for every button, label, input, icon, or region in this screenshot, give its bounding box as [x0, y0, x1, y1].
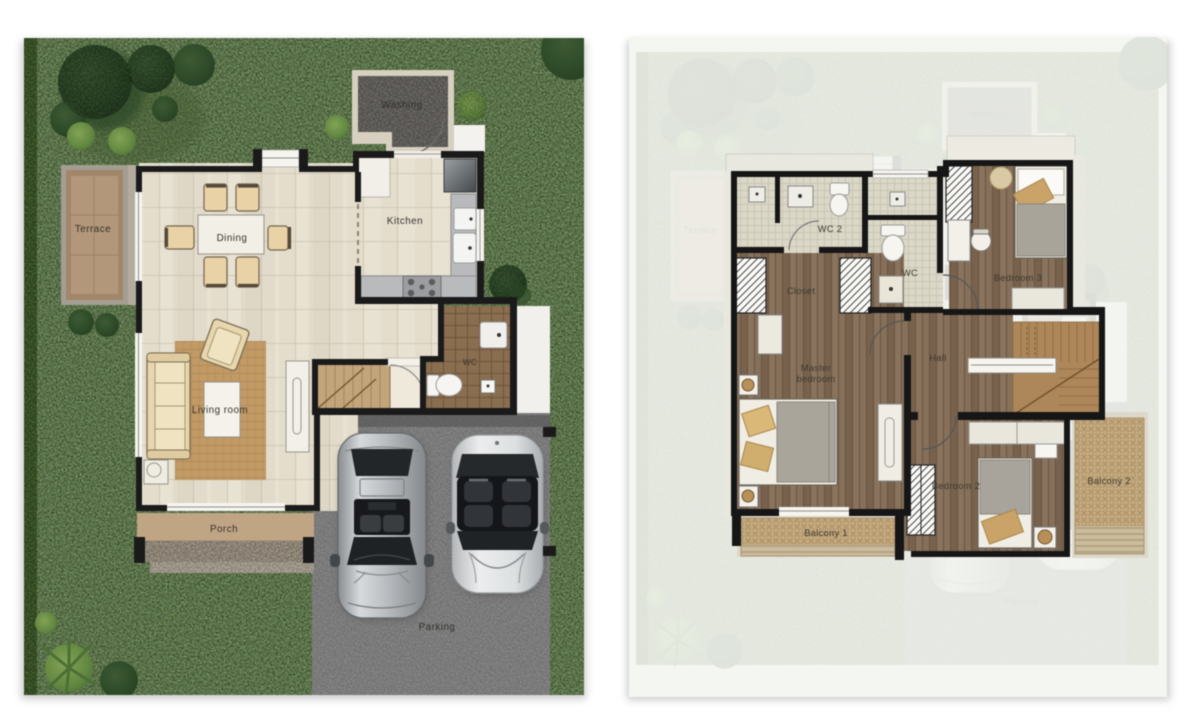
svg-text:WC: WC: [902, 268, 918, 278]
svg-text:Balcony 1: Balcony 1: [804, 528, 848, 538]
svg-text:Master: Master: [801, 363, 831, 373]
svg-text:Balcony 2: Balcony 2: [1087, 476, 1131, 486]
svg-text:Closet: Closet: [787, 286, 815, 296]
svg-text:Bedroom 3: Bedroom 3: [994, 273, 1042, 283]
svg-text:WC 2: WC 2: [818, 224, 842, 234]
svg-text:bedroom: bedroom: [797, 374, 836, 384]
svg-text:Hall: Hall: [929, 353, 946, 363]
svg-text:Bedroom 2: Bedroom 2: [932, 481, 980, 491]
